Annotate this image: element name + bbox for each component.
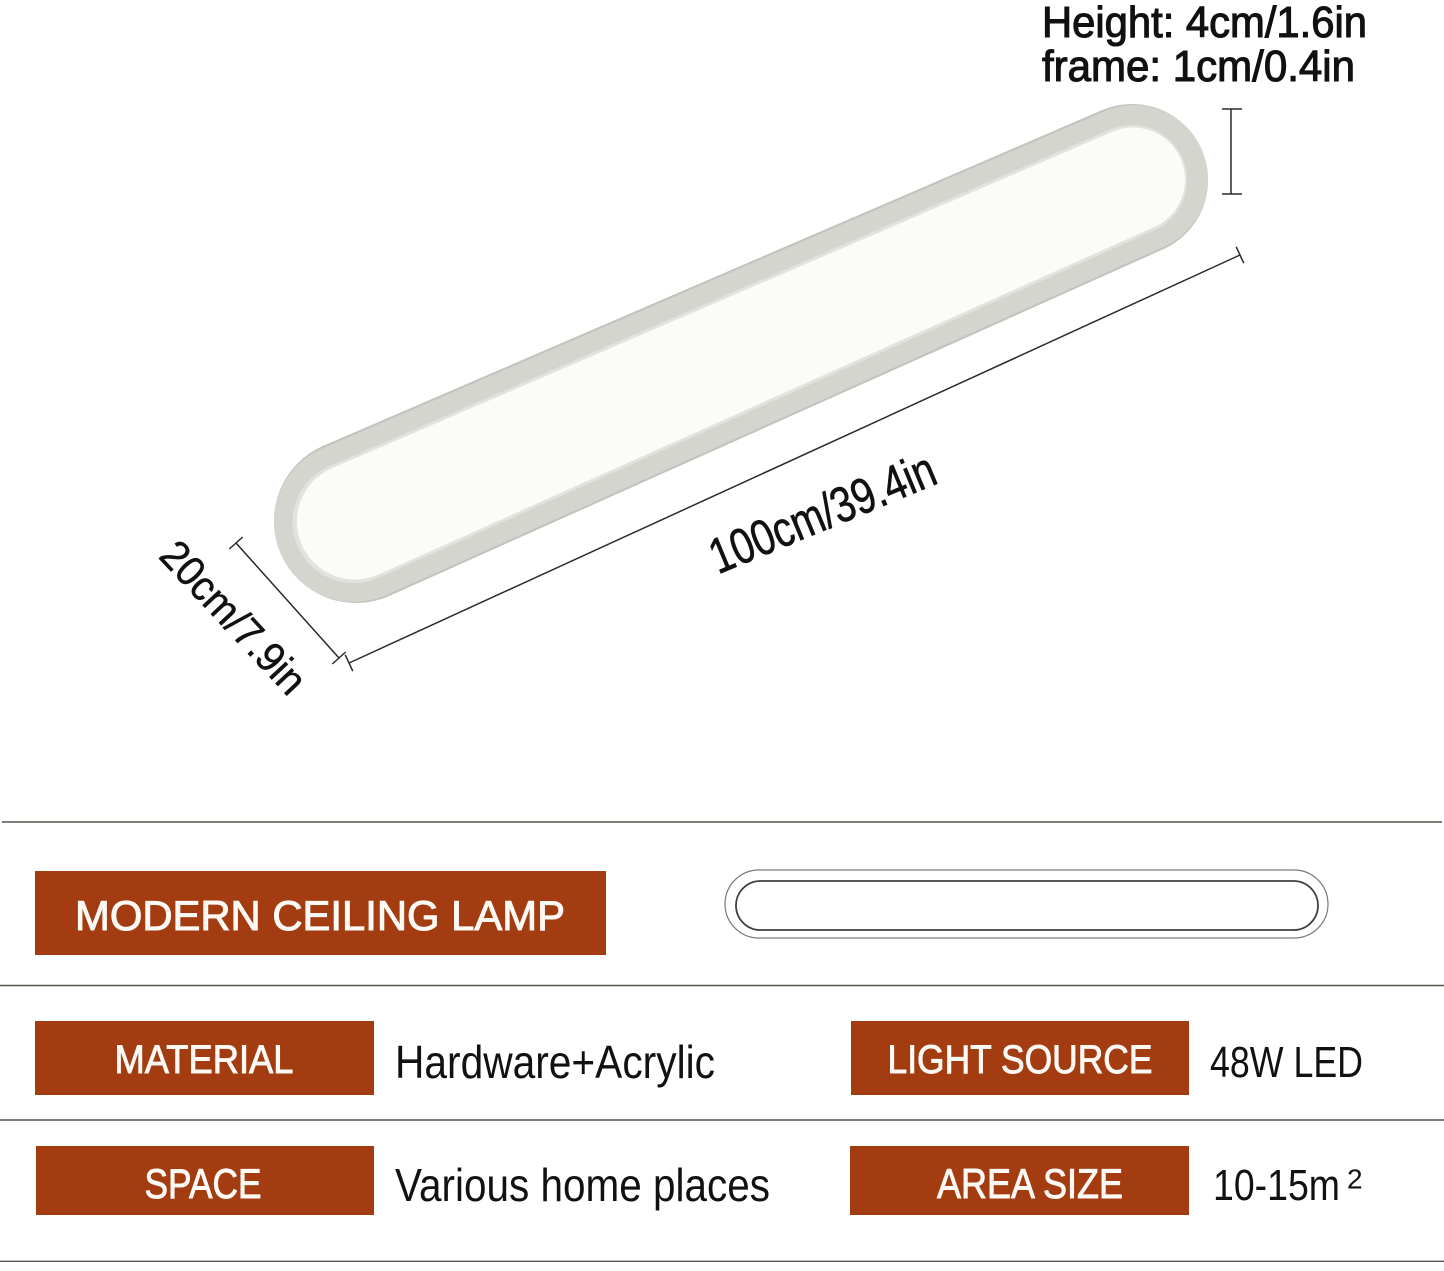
svg-text:48W LED: 48W LED xyxy=(1210,1038,1363,1087)
svg-text:SPACE: SPACE xyxy=(145,1160,262,1207)
svg-text:Hardware+Acrylic: Hardware+Acrylic xyxy=(395,1036,715,1088)
svg-text:AREA SIZE: AREA SIZE xyxy=(937,1160,1123,1207)
svg-text:frame: 1cm/0.4in: frame: 1cm/0.4in xyxy=(1042,42,1355,91)
svg-text:Various home places: Various home places xyxy=(395,1159,770,1211)
svg-text:MATERIAL: MATERIAL xyxy=(115,1038,294,1082)
svg-text:LIGHT SOURCE: LIGHT SOURCE xyxy=(888,1038,1153,1082)
svg-text:Height: 4cm/1.6in: Height: 4cm/1.6in xyxy=(1042,0,1367,47)
svg-text:MODERN CEILING LAMP: MODERN CEILING LAMP xyxy=(75,892,565,939)
